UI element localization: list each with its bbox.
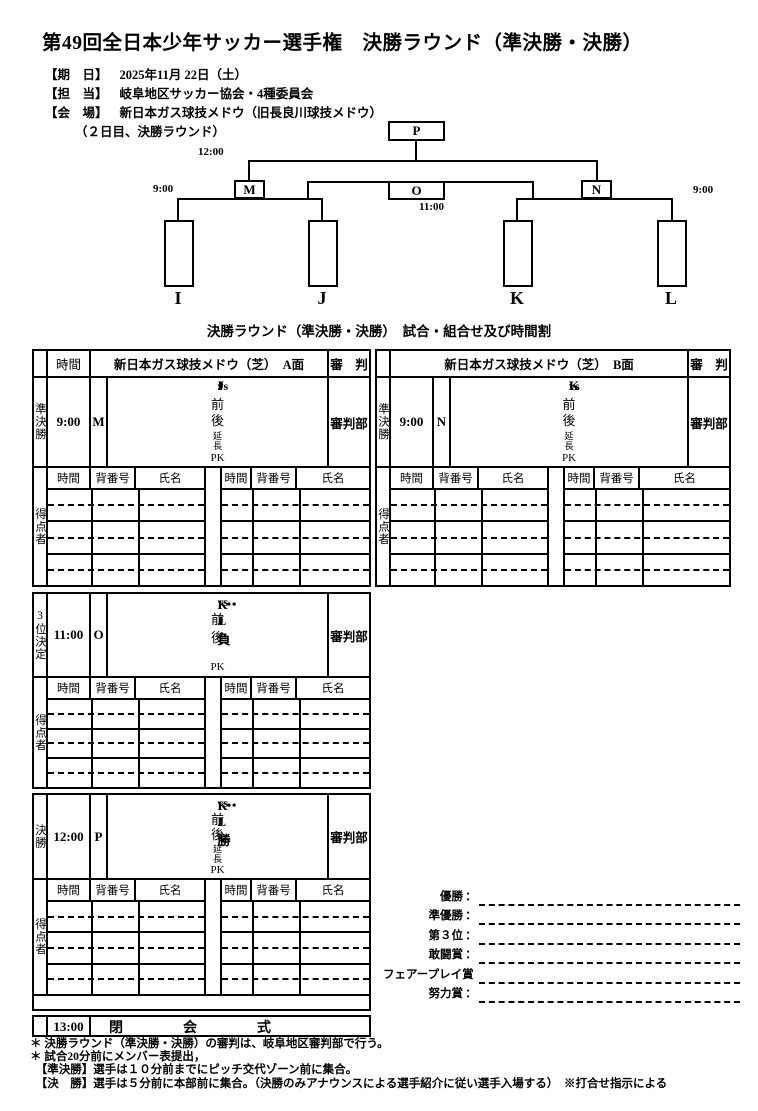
scorers-semi-b: 得点者 時間背番号氏名 時間背番号氏名 bbox=[377, 468, 729, 585]
bracket-match-o: O bbox=[388, 181, 445, 200]
table-header-row-b: 新日本ガス球技メドウ（芝） B面 審 判 bbox=[377, 351, 729, 378]
stage-label: 準決勝 bbox=[377, 378, 391, 466]
bracket-time-final: 12:00 bbox=[198, 146, 224, 158]
award-row-third: 第３位： bbox=[383, 925, 740, 945]
bracket-time-semi-left: 9:00 bbox=[153, 183, 173, 195]
empty-row bbox=[34, 994, 369, 1009]
closing-ceremony-row: 13:00 閉 会 式 bbox=[32, 1015, 371, 1037]
scorer-label: 得点者 bbox=[34, 880, 48, 994]
stage-label: 3位決定 bbox=[34, 594, 48, 676]
scorer-label: 得点者 bbox=[34, 678, 48, 787]
match-row-semi-a: 準決勝 9:00 M I vs J 前後 延長PK bbox=[34, 378, 369, 468]
bracket-team-box-i bbox=[164, 220, 194, 287]
footnote-line: ＊ 試合20分前にメンバー表提出， bbox=[30, 1051, 754, 1064]
match-box: K vs L 前後 延長PK bbox=[451, 378, 689, 466]
award-fill-line bbox=[479, 999, 740, 1003]
match-code: O bbox=[91, 594, 108, 676]
match-row-third: 3位決定 11:00 O I・J負 vs K・L負 前後 PK bbox=[34, 594, 369, 678]
footnote-line: 【決 勝】選手は５分前に本部前に集合。（決勝のみアナウンスによる選手紹介に従い選… bbox=[30, 1078, 754, 1091]
match-row-final: 決勝 12:00 P I・J勝 vs K・L勝 前後 延長PK bbox=[34, 795, 369, 880]
bracket-match-n: N bbox=[581, 180, 612, 199]
scorers-third: 得点者 時間背番号氏名 時間背番号氏名 bbox=[34, 678, 369, 787]
match-time: 12:00 bbox=[48, 795, 91, 878]
footnote-line: 【準決勝】選手は１０分前までにピッチ交代ゾーン前に集合。 bbox=[30, 1064, 754, 1077]
awards-list: 優勝： 準優勝： 第３位： 敢闘賞： フェアープレイ賞： 努力賞： bbox=[383, 886, 740, 1003]
stage-label: 決勝 bbox=[34, 795, 48, 878]
bracket-team-box-l bbox=[657, 220, 687, 287]
bracket-team-box-j bbox=[308, 220, 338, 287]
referee-cell: 審判部 bbox=[689, 378, 729, 466]
award-row-effort: 努力賞： bbox=[383, 984, 740, 1004]
referee-header: 審 判 bbox=[689, 351, 729, 376]
bracket-time-semi-right: 9:00 bbox=[693, 184, 713, 196]
match-row-semi-b: 準決勝 9:00 N K vs L 前後 延長PK bbox=[377, 378, 729, 468]
award-row-runnerup: 準優勝： bbox=[383, 906, 740, 926]
bracket-team-label-i: I bbox=[163, 288, 193, 309]
match-time: 11:00 bbox=[48, 594, 91, 676]
table-semifinal-b: 新日本ガス球技メドウ（芝） B面 審 判 準決勝 9:00 N K vs L bbox=[375, 349, 731, 587]
venue-b-header: 新日本ガス球技メドウ（芝） B面 bbox=[391, 351, 689, 376]
match-time: 9:00 bbox=[48, 378, 91, 466]
stage-label: 準決勝 bbox=[34, 378, 48, 466]
match-code: N bbox=[434, 378, 451, 466]
referee-cell: 審判部 bbox=[329, 795, 369, 878]
scorers-final: 得点者 時間背番号氏名 時間背番号氏名 bbox=[34, 880, 369, 994]
bracket-team-box-k bbox=[503, 220, 533, 287]
table-third-place: 3位決定 11:00 O I・J負 vs K・L負 前後 PK bbox=[32, 592, 371, 789]
bracket-lines bbox=[0, 0, 758, 345]
match-code: P bbox=[91, 795, 108, 878]
award-row-champion: 優勝： bbox=[383, 886, 740, 906]
match-box: I・J勝 vs K・L勝 前後 延長PK bbox=[108, 795, 329, 878]
match-box: I vs J 前後 延長PK bbox=[108, 378, 329, 466]
schedule-caption: 決勝ラウンド（準決勝・決勝） 試合・組合せ及び時間割 bbox=[0, 320, 758, 340]
referee-cell: 審判部 bbox=[329, 378, 369, 466]
scorers-semi-a: 得点者 時間背番号氏名 時間背番号氏名 bbox=[34, 468, 369, 585]
match-code: M bbox=[91, 378, 108, 466]
bracket-team-label-k: K bbox=[502, 288, 532, 309]
bracket-team-label-l: L bbox=[656, 288, 686, 309]
bracket-match-p: P bbox=[388, 121, 445, 141]
award-row-fairplay: フェアープレイ賞： bbox=[383, 964, 740, 984]
col-header-time: 時間 bbox=[48, 351, 91, 376]
match-box: I・J負 vs K・L負 前後 PK bbox=[108, 594, 329, 676]
table-final: 決勝 12:00 P I・J勝 vs K・L勝 前後 延長PK bbox=[32, 793, 371, 1011]
table-header-row-a: 時間 新日本ガス球技メドウ（芝） A面 審 判 bbox=[34, 351, 369, 378]
bracket-match-m: M bbox=[234, 180, 265, 199]
table-semifinal-a: 時間 新日本ガス球技メドウ（芝） A面 審 判 準決勝 9:00 M I vs … bbox=[32, 349, 371, 587]
footnote-line: ＊ 決勝ラウンド（準決勝・決勝）の審判は、岐阜地区審判部で行う。 bbox=[30, 1038, 754, 1051]
bracket-team-label-j: J bbox=[307, 288, 337, 309]
bracket-time-third: 11:00 bbox=[419, 201, 444, 213]
closing-label: 閉 会 式 bbox=[91, 1017, 369, 1037]
venue-a-header: 新日本ガス球技メドウ（芝） A面 bbox=[91, 351, 329, 376]
footnotes: ＊ 決勝ラウンド（準決勝・決勝）の審判は、岐阜地区審判部で行う。 ＊ 試合20分… bbox=[30, 1038, 754, 1091]
scorer-label: 得点者 bbox=[34, 468, 48, 585]
referee-header: 審 判 bbox=[329, 351, 369, 376]
award-row-fighting-spirit: 敢闘賞： bbox=[383, 945, 740, 965]
scorer-label: 得点者 bbox=[377, 468, 391, 585]
match-time: 9:00 bbox=[391, 378, 434, 466]
referee-cell: 審判部 bbox=[329, 594, 369, 676]
document-page: 第49回全日本少年サッカー選手権 決勝ラウンド（準決勝・決勝） 【期 日】202… bbox=[0, 0, 758, 1111]
closing-time: 13:00 bbox=[48, 1017, 91, 1037]
